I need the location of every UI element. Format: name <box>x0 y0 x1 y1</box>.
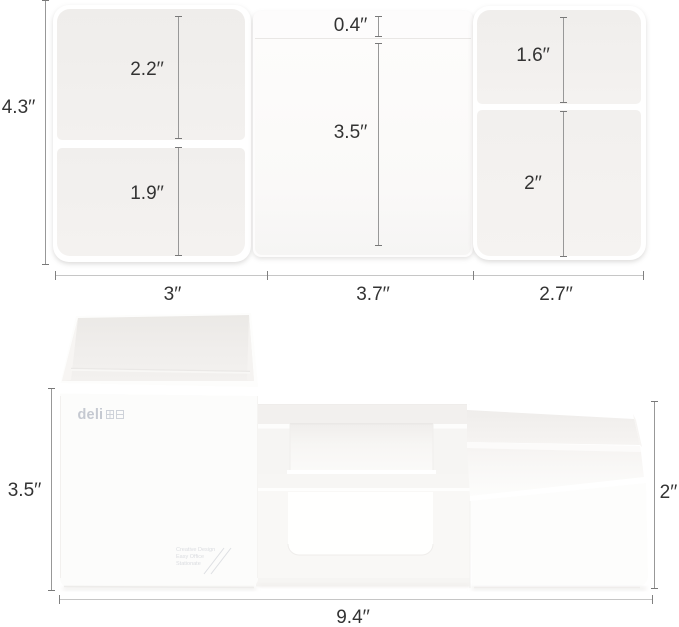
svg-text:deli: deli <box>78 407 104 423</box>
svg-text:Stationate: Stationate <box>176 561 201 567</box>
svg-text:Easy Office: Easy Office <box>176 554 204 560</box>
svg-text:Creative Design: Creative Design <box>176 547 215 553</box>
